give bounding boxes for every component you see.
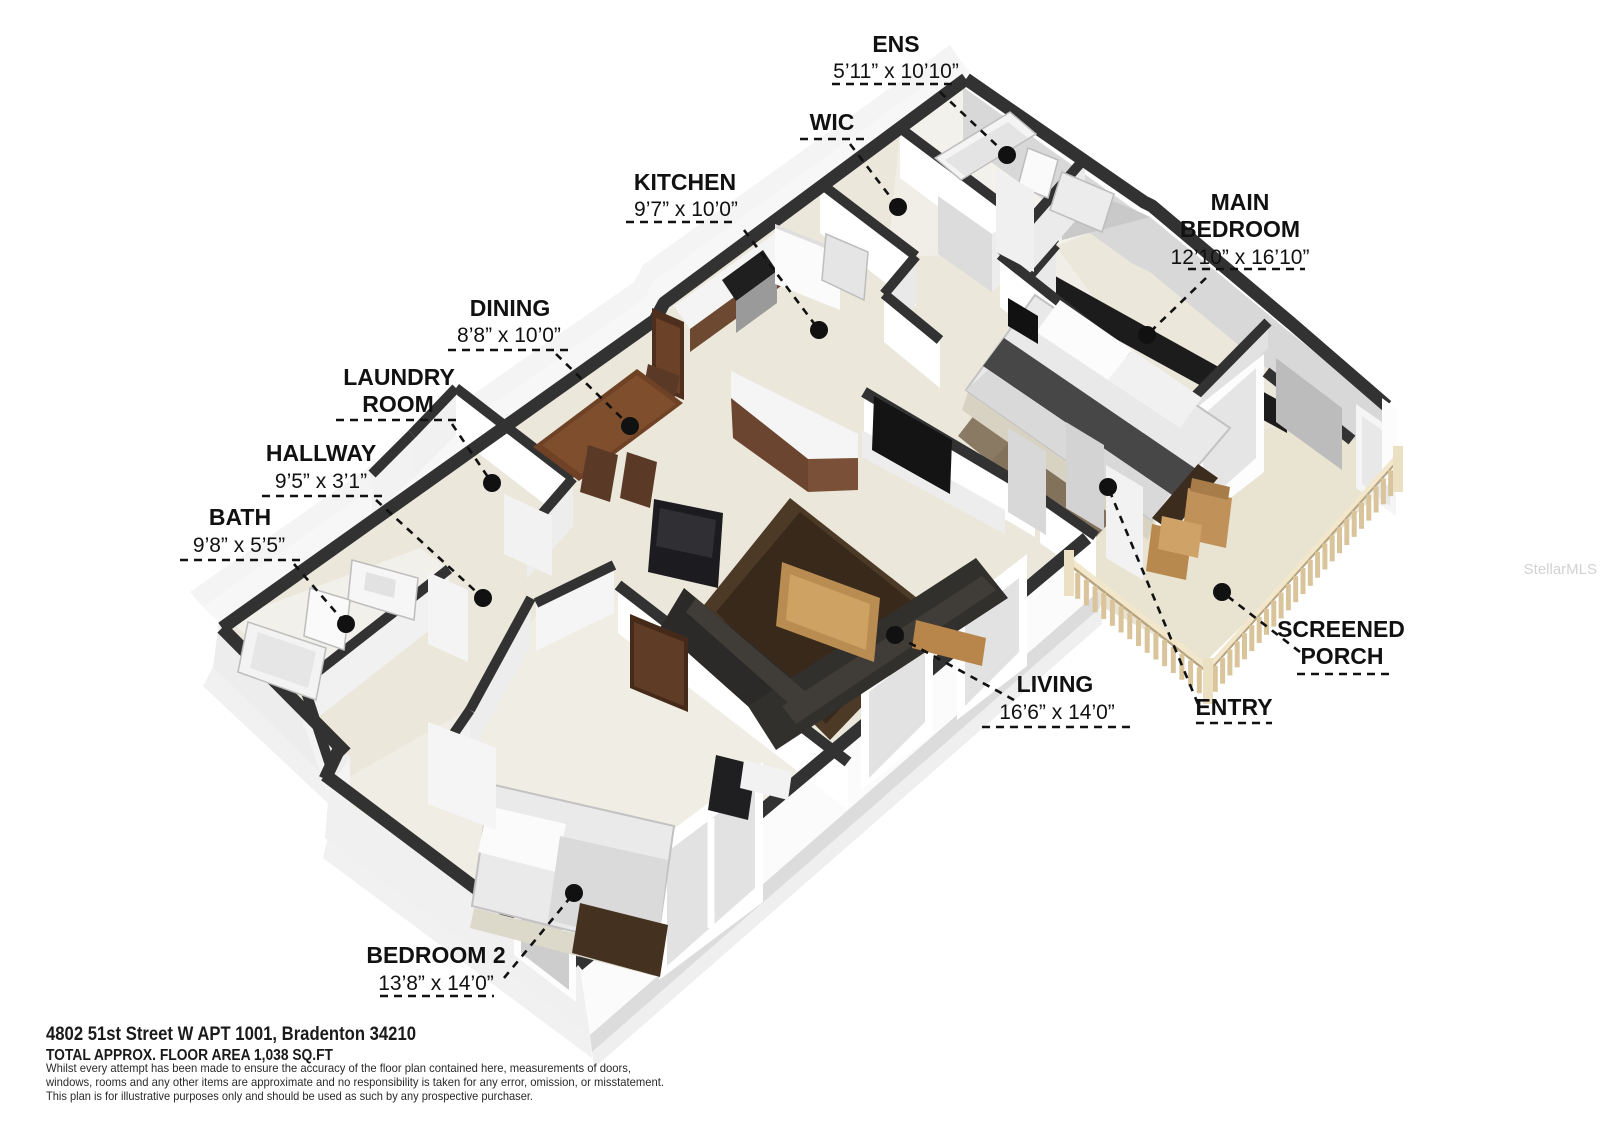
svg-text:StellarMLS: StellarMLS xyxy=(1524,561,1597,578)
svg-text:16’6” x 14’0”: 16’6” x 14’0” xyxy=(999,701,1115,724)
svg-text:Whilst every attempt has been: Whilst every attempt has been made to en… xyxy=(46,1061,631,1075)
svg-text:BEDROOM 2: BEDROOM 2 xyxy=(366,942,505,968)
svg-text:9’7” x 10’0”: 9’7” x 10’0” xyxy=(634,198,738,221)
svg-text:ENS: ENS xyxy=(872,31,919,57)
svg-text:4802 51st Street W APT 1001, B: 4802 51st Street W APT 1001, Bradenton 3… xyxy=(46,1024,416,1045)
svg-text:SCREENED: SCREENED xyxy=(1277,616,1405,642)
svg-text:ENTRY: ENTRY xyxy=(1195,694,1272,720)
svg-text:9’5” x 3’1”: 9’5” x 3’1” xyxy=(275,470,367,493)
svg-text:WIC: WIC xyxy=(810,109,855,135)
svg-text:This plan is for illustrative: This plan is for illustrative purposes o… xyxy=(46,1089,533,1103)
svg-text:PORCH: PORCH xyxy=(1300,643,1383,669)
svg-text:MAIN: MAIN xyxy=(1211,189,1270,215)
svg-text:BATH: BATH xyxy=(209,504,271,530)
svg-text:windows, rooms and any other i: windows, rooms and any other items are a… xyxy=(45,1075,664,1089)
svg-text:9’8” x 5’5”: 9’8” x 5’5” xyxy=(193,534,285,557)
svg-text:8’8” x 10’0”: 8’8” x 10’0” xyxy=(457,324,561,347)
svg-text:DINING: DINING xyxy=(470,295,551,321)
svg-text:LIVING: LIVING xyxy=(1017,671,1094,697)
svg-text:LAUNDRY: LAUNDRY xyxy=(343,364,455,390)
svg-text:BEDROOM: BEDROOM xyxy=(1180,216,1300,242)
svg-text:13’8” x 14’0”: 13’8” x 14’0” xyxy=(378,972,494,995)
svg-text:ROOM: ROOM xyxy=(362,391,434,417)
svg-text:HALLWAY: HALLWAY xyxy=(266,440,376,466)
svg-text:KITCHEN: KITCHEN xyxy=(634,169,736,195)
svg-text:12’10” x 16’10”: 12’10” x 16’10” xyxy=(1171,246,1310,269)
svg-text:5’11” x 10’10”: 5’11” x 10’10” xyxy=(833,60,959,83)
